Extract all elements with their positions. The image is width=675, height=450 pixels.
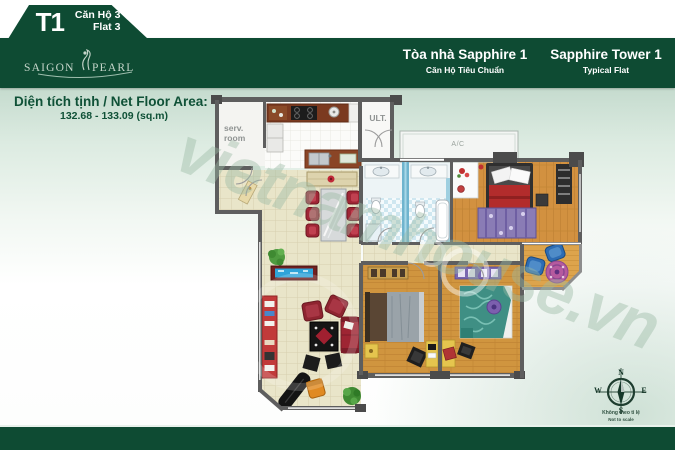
area-label: Diện tích tịnh / Net Floor Area: bbox=[14, 94, 214, 109]
compass-north: N bbox=[615, 368, 627, 377]
building-title-en: Sapphire Tower 1 bbox=[545, 48, 667, 63]
footer-band bbox=[0, 425, 675, 450]
header-title-vi-block: Tòa nhà Sapphire 1 Căn Hộ Tiêu Chuẩn bbox=[383, 48, 547, 75]
area-value: 132.68 - 133.09 (sq.m) bbox=[14, 110, 214, 122]
compass-west: W bbox=[592, 386, 604, 395]
label-service-room: serv. room bbox=[224, 123, 264, 143]
building-title-vi: Tòa nhà Sapphire 1 bbox=[383, 48, 547, 63]
logo-word-pearl: PEARL bbox=[92, 62, 134, 74]
building-subtitle-vi: Căn Hộ Tiêu Chuẩn bbox=[383, 65, 547, 75]
badge-unit: Căn Hộ 3 Flat 3 bbox=[75, 10, 121, 33]
compass-east: E bbox=[638, 386, 650, 395]
label-utility: ULT. bbox=[362, 113, 394, 123]
logo-word-saigon: SAIGON bbox=[24, 62, 75, 74]
header-title-en-block: Sapphire Tower 1 Typical Flat bbox=[545, 48, 667, 75]
saigon-pearl-logo: SAIGON PEARL bbox=[22, 47, 150, 83]
label-ac: A/C bbox=[440, 141, 476, 148]
badge-code: T1 bbox=[36, 7, 64, 38]
compass-note-en: Not to scale bbox=[588, 417, 654, 422]
badge-unit-en: Flat 3 bbox=[93, 22, 120, 34]
building-subtitle-en: Typical Flat bbox=[545, 65, 667, 75]
net-floor-area-block: Diện tích tịnh / Net Floor Area: 132.68 … bbox=[14, 94, 214, 122]
brochure-page: { "colors": { "brand_green": "#0e4b33", … bbox=[0, 0, 675, 450]
compass-note: Không theo tỉ lệ Not to scale bbox=[588, 410, 654, 422]
heron-icon bbox=[83, 50, 90, 70]
